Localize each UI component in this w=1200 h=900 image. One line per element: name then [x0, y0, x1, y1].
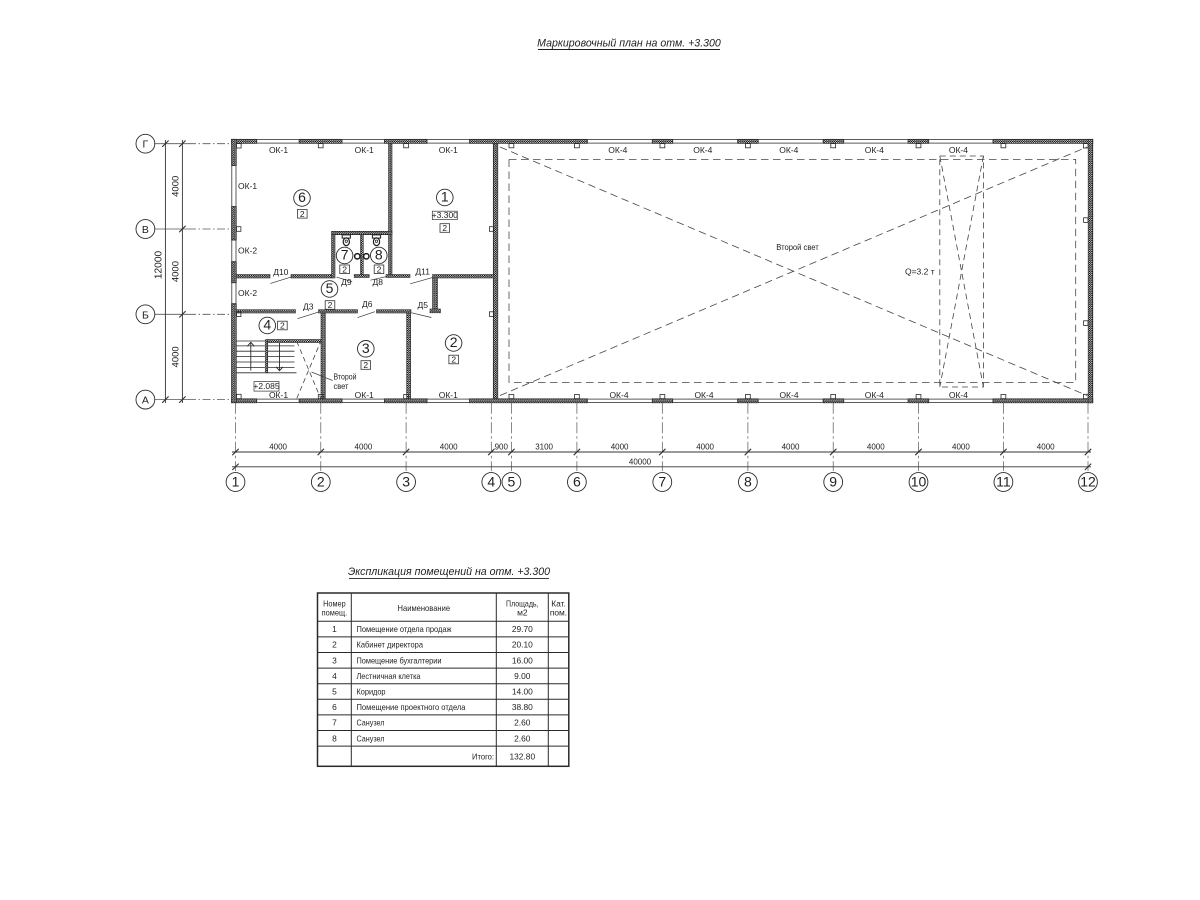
svg-text:4000: 4000 — [171, 261, 182, 282]
svg-text:8: 8 — [332, 733, 337, 743]
svg-text:+3.300: +3.300 — [432, 210, 459, 220]
svg-text:2: 2 — [317, 473, 325, 489]
svg-text:900: 900 — [495, 443, 509, 452]
svg-text:ОК-4: ОК-4 — [694, 390, 713, 400]
svg-text:3100: 3100 — [535, 443, 553, 452]
svg-text:2: 2 — [451, 355, 456, 365]
svg-text:4000: 4000 — [355, 443, 373, 452]
svg-text:ОК-1: ОК-1 — [355, 145, 374, 155]
svg-text:пом.: пом. — [550, 608, 567, 618]
svg-text:4000: 4000 — [269, 443, 287, 452]
svg-text:5: 5 — [326, 280, 334, 296]
svg-text:10: 10 — [911, 473, 927, 489]
svg-text:4000: 4000 — [440, 443, 458, 452]
svg-text:ОК-1: ОК-1 — [269, 145, 288, 155]
svg-text:8: 8 — [375, 247, 383, 263]
svg-text:7: 7 — [332, 718, 337, 728]
svg-text:3: 3 — [332, 655, 337, 665]
svg-text:ОК-4: ОК-4 — [865, 145, 884, 155]
svg-text:ОК-4: ОК-4 — [608, 145, 627, 155]
svg-text:4000: 4000 — [867, 443, 885, 452]
svg-text:2: 2 — [280, 321, 285, 331]
svg-text:6: 6 — [332, 702, 337, 712]
svg-text:20.10: 20.10 — [512, 640, 533, 650]
svg-text:8: 8 — [744, 473, 752, 489]
svg-text:6: 6 — [298, 189, 306, 205]
svg-text:Помещение бухгалтерии: Помещение бухгалтерии — [357, 655, 442, 665]
svg-text:1: 1 — [332, 624, 337, 634]
svg-text:4000: 4000 — [952, 443, 970, 452]
svg-text:Помещение проектного отдела: Помещение проектного отдела — [357, 702, 466, 712]
svg-text:ОК-4: ОК-4 — [949, 145, 968, 155]
svg-text:ОК-4: ОК-4 — [949, 390, 968, 400]
svg-text:2: 2 — [377, 264, 382, 274]
svg-text:29.70: 29.70 — [512, 624, 533, 634]
svg-text:16.00: 16.00 — [512, 655, 533, 665]
svg-text:9.00: 9.00 — [514, 671, 531, 681]
svg-text:+2.085: +2.085 — [253, 381, 280, 391]
svg-text:4: 4 — [263, 317, 271, 333]
svg-text:Д3: Д3 — [303, 301, 314, 311]
svg-text:2: 2 — [363, 360, 368, 370]
svg-text:ОК-4: ОК-4 — [779, 390, 798, 400]
svg-text:Кабинет директора: Кабинет директора — [357, 640, 424, 650]
svg-text:Г: Г — [143, 139, 149, 151]
svg-text:4000: 4000 — [696, 443, 714, 452]
svg-text:9: 9 — [829, 473, 837, 489]
svg-text:40000: 40000 — [629, 457, 652, 466]
svg-text:ОК-1: ОК-1 — [238, 181, 257, 191]
svg-text:ОК-1: ОК-1 — [439, 390, 458, 400]
svg-text:Д11: Д11 — [415, 267, 430, 277]
svg-text:4000: 4000 — [171, 346, 182, 367]
svg-text:Q=3.2 т: Q=3.2 т — [905, 266, 935, 276]
svg-text:Д6: Д6 — [362, 299, 373, 309]
svg-text:2.60: 2.60 — [514, 733, 531, 743]
svg-text:1: 1 — [441, 189, 449, 205]
svg-text:Д9: Д9 — [341, 277, 352, 287]
svg-text:14.00: 14.00 — [512, 687, 533, 697]
svg-text:ОК-4: ОК-4 — [865, 390, 884, 400]
svg-text:12000: 12000 — [154, 251, 165, 280]
svg-text:4000: 4000 — [171, 176, 182, 197]
svg-text:ОК-2: ОК-2 — [238, 245, 257, 255]
svg-text:Санузел: Санузел — [357, 733, 385, 743]
svg-text:2: 2 — [450, 334, 458, 350]
svg-text:2: 2 — [342, 264, 347, 274]
svg-text:А: А — [142, 395, 149, 407]
svg-text:4000: 4000 — [611, 443, 629, 452]
svg-text:ОК-4: ОК-4 — [609, 390, 628, 400]
svg-text:4: 4 — [487, 473, 495, 489]
svg-text:м2: м2 — [517, 608, 528, 618]
svg-text:Итого:: Итого: — [472, 752, 494, 762]
svg-text:4: 4 — [332, 671, 337, 681]
svg-text:2: 2 — [328, 300, 333, 310]
svg-text:Д8: Д8 — [372, 277, 383, 287]
svg-text:4000: 4000 — [782, 443, 800, 452]
svg-text:12: 12 — [1080, 473, 1096, 489]
svg-text:4000: 4000 — [1037, 443, 1055, 452]
svg-text:3: 3 — [402, 473, 410, 489]
svg-text:132.80: 132.80 — [509, 752, 535, 762]
svg-text:2: 2 — [300, 209, 305, 219]
svg-text:ОК-1: ОК-1 — [439, 145, 458, 155]
svg-text:ОК-2: ОК-2 — [238, 288, 257, 298]
svg-text:Помещение отдела продаж: Помещение отдела продаж — [357, 624, 452, 634]
svg-text:Коридор: Коридор — [357, 687, 386, 697]
svg-text:11: 11 — [996, 473, 1011, 489]
svg-text:помещ.: помещ. — [322, 608, 348, 618]
svg-text:38.80: 38.80 — [512, 702, 533, 712]
svg-text:Второй свет: Второй свет — [776, 242, 819, 252]
svg-text:ОК-4: ОК-4 — [779, 145, 798, 155]
svg-text:2: 2 — [332, 640, 337, 650]
svg-text:5: 5 — [508, 473, 516, 489]
svg-text:2: 2 — [442, 223, 447, 233]
svg-text:Экспликация помещений на отм.: Экспликация помещений на отм. +3.300 — [348, 566, 550, 578]
svg-text:7: 7 — [341, 247, 349, 263]
svg-text:5: 5 — [332, 687, 337, 697]
svg-text:1: 1 — [232, 473, 240, 489]
svg-text:Наименование: Наименование — [398, 603, 451, 613]
svg-text:7: 7 — [658, 473, 666, 489]
svg-text:В: В — [142, 224, 149, 236]
svg-text:Б: Б — [142, 309, 149, 321]
svg-text:Лестничная клетка: Лестничная клетка — [357, 671, 421, 681]
svg-text:Санузел: Санузел — [357, 718, 385, 728]
svg-text:ОК-1: ОК-1 — [355, 390, 374, 400]
svg-text:свет: свет — [334, 381, 349, 391]
svg-text:3: 3 — [362, 340, 370, 356]
svg-text:Д10: Д10 — [273, 267, 288, 277]
svg-text:ОК-4: ОК-4 — [693, 145, 712, 155]
svg-text:2.60: 2.60 — [514, 718, 531, 728]
svg-text:Маркировочный план на отм. +3.: Маркировочный план на отм. +3.300 — [537, 38, 721, 50]
svg-text:Д5: Д5 — [417, 300, 428, 310]
svg-text:6: 6 — [573, 473, 581, 489]
